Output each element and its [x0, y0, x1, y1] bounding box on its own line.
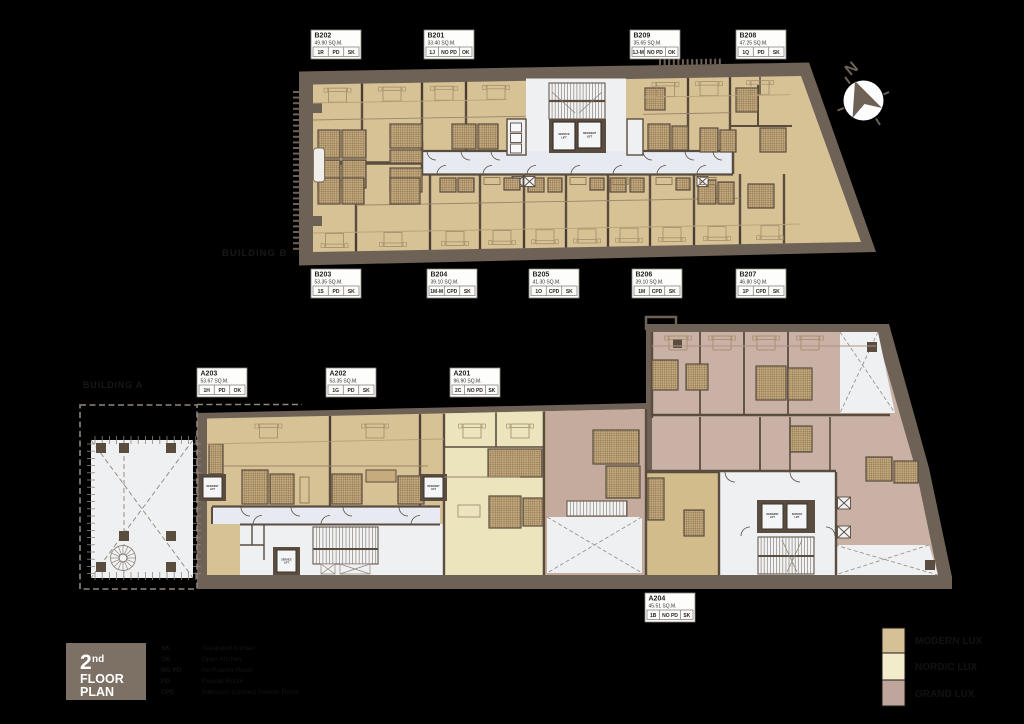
svg-text:A204: A204: [649, 596, 666, 603]
svg-text:SK: SK: [566, 289, 573, 295]
svg-text:nd: nd: [92, 654, 104, 665]
svg-text:NO PD: NO PD: [467, 388, 483, 394]
svg-text:1O: 1O: [535, 289, 542, 295]
svg-text:LIFT: LIFT: [431, 488, 437, 491]
svg-text:SK: SK: [669, 289, 676, 295]
svg-text:SK: SK: [348, 289, 355, 295]
svg-text:B206: B206: [636, 272, 653, 279]
svg-text:SK: SK: [363, 388, 370, 394]
svg-text:CPD: CPD: [549, 289, 560, 295]
svg-text:LIFT: LIFT: [284, 562, 290, 565]
svg-text:BUILDING B: BUILDING B: [222, 248, 287, 259]
svg-text:1M: 1M: [638, 289, 645, 295]
svg-text:B208: B208: [740, 33, 757, 40]
svg-text:SK: SK: [773, 50, 780, 56]
svg-text:B207: B207: [740, 272, 757, 279]
svg-text:LIFT: LIFT: [587, 134, 593, 138]
svg-text:45.51 SQ.M.: 45.51 SQ.M.: [649, 603, 677, 609]
svg-text:N: N: [842, 59, 862, 79]
svg-text:SK: SK: [464, 289, 471, 295]
svg-text:B205: B205: [533, 272, 550, 279]
svg-text:No Powder Room: No Powder Room: [202, 667, 253, 674]
svg-text:PD: PD: [161, 678, 170, 685]
svg-text:PD: PD: [348, 388, 355, 394]
svg-text:CPD: CPD: [161, 689, 175, 696]
svg-text:1P: 1P: [743, 289, 750, 295]
svg-text:1J-M: 1J-M: [633, 50, 644, 56]
svg-text:SK: SK: [773, 289, 780, 295]
svg-text:OK: OK: [234, 388, 242, 394]
svg-text:LIFT: LIFT: [770, 516, 776, 519]
svg-text:LIFT: LIFT: [561, 135, 567, 139]
svg-text:1Q: 1Q: [742, 50, 749, 56]
svg-text:53.35 SQ.M.: 53.35 SQ.M.: [330, 378, 358, 384]
svg-text:MODERN LUX: MODERN LUX: [915, 636, 983, 647]
svg-text:CPD: CPD: [756, 289, 767, 295]
svg-text:B202: B202: [315, 33, 332, 40]
svg-text:CPD: CPD: [447, 289, 458, 295]
svg-text:PD: PD: [333, 289, 340, 295]
svg-text:39.10 SQ.M.: 39.10 SQ.M.: [431, 279, 459, 285]
svg-text:A202: A202: [330, 371, 347, 378]
svg-text:1M-M: 1M-M: [430, 289, 443, 295]
svg-text:OK: OK: [462, 50, 470, 56]
svg-text:96.90 SQ.M.: 96.90 SQ.M.: [454, 378, 482, 384]
svg-text:SK: SK: [348, 50, 355, 56]
svg-text:41.30 SQ.M.: 41.30 SQ.M.: [533, 279, 561, 285]
svg-text:1H: 1H: [203, 388, 210, 394]
svg-text:LIFT: LIFT: [794, 516, 800, 519]
svg-text:NO PD: NO PD: [441, 50, 457, 56]
svg-text:LIFT: LIFT: [210, 488, 216, 491]
svg-text:B209: B209: [634, 33, 651, 40]
svg-text:39.10 SQ.M.: 39.10 SQ.M.: [636, 279, 664, 285]
svg-text:33.40 SQ.M.: 33.40 SQ.M.: [428, 40, 456, 46]
svg-text:NO PD: NO PD: [662, 613, 678, 619]
svg-text:RESIDENT: RESIDENT: [583, 131, 597, 135]
svg-text:A203: A203: [201, 371, 218, 378]
svg-text:PD: PD: [333, 50, 340, 56]
svg-text:BUILDING A: BUILDING A: [83, 380, 143, 390]
svg-text:NO PD: NO PD: [161, 667, 182, 674]
svg-text:SK: SK: [161, 645, 170, 652]
svg-text:1R: 1R: [317, 50, 324, 56]
svg-text:PLAN: PLAN: [80, 685, 114, 699]
svg-text:Powder Room: Powder Room: [202, 678, 243, 685]
svg-text:49.90 SQ.M.: 49.90 SQ.M.: [315, 40, 343, 46]
svg-text:47.25 SQ.M.: 47.25 SQ.M.: [740, 40, 768, 46]
svg-text:1B: 1B: [650, 613, 657, 619]
svg-text:B204: B204: [431, 272, 448, 279]
svg-text:PD: PD: [758, 50, 765, 56]
svg-text:OK: OK: [161, 656, 171, 663]
svg-text:Bathroom Connect Powder Room: Bathroom Connect Powder Room: [202, 689, 299, 696]
svg-text:A201: A201: [454, 371, 471, 378]
svg-text:B201: B201: [428, 33, 445, 40]
svg-text:PD: PD: [219, 388, 226, 394]
svg-text:GRAND LUX: GRAND LUX: [915, 689, 975, 700]
svg-text:Open Kitchen: Open Kitchen: [202, 656, 242, 663]
svg-text:SK: SK: [488, 388, 495, 394]
svg-text:B203: B203: [315, 272, 332, 279]
svg-text:1G: 1G: [332, 388, 339, 394]
svg-text:53.67 SQ.M.: 53.67 SQ.M.: [201, 378, 229, 384]
svg-text:1J: 1J: [429, 50, 435, 56]
svg-text:2: 2: [80, 651, 92, 674]
svg-text:NO PD: NO PD: [647, 50, 663, 56]
svg-text:OK: OK: [668, 50, 676, 56]
svg-text:35.65 SQ.M.: 35.65 SQ.M.: [634, 40, 662, 46]
svg-text:2C: 2C: [455, 388, 462, 394]
svg-text:53.35 SQ.M.: 53.35 SQ.M.: [315, 279, 343, 285]
svg-text:SK: SK: [683, 613, 690, 619]
svg-text:46.80 SQ.M.: 46.80 SQ.M.: [740, 279, 768, 285]
svg-text:Separated Kitchen: Separated Kitchen: [202, 645, 256, 652]
svg-text:CPD: CPD: [652, 289, 663, 295]
svg-text:FLOOR: FLOOR: [80, 672, 124, 686]
svg-text:1S: 1S: [318, 289, 325, 295]
svg-text:SERVICE: SERVICE: [558, 132, 570, 136]
svg-text:NORDIC LUX: NORDIC LUX: [915, 662, 978, 673]
